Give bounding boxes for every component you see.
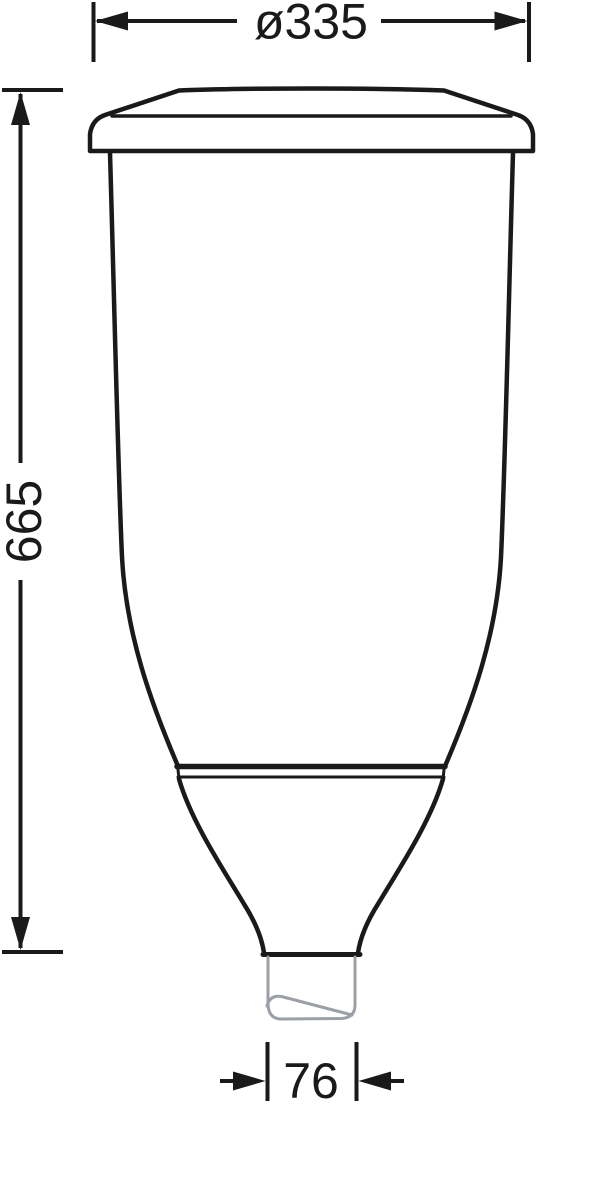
height-dimension-label: 665 [0, 480, 52, 563]
drawing-canvas: ø335 665 [0, 0, 606, 1200]
diameter-dimension-label: ø335 [254, 0, 368, 50]
dimension-height: 665 [0, 90, 63, 952]
spigot-dimension-label: 76 [283, 1053, 339, 1109]
arrowhead-up-icon [11, 92, 30, 125]
body-left-wall [110, 153, 178, 765]
dimension-spigot: 76 [220, 1042, 404, 1109]
pole-break-line [267, 996, 352, 1015]
funnel-left-wall [179, 779, 264, 953]
luminaire-outline [90, 89, 533, 955]
dimension-diameter: ø335 [94, 0, 530, 62]
body-right-wall [446, 153, 514, 765]
technical-drawing: ø335 665 [0, 0, 606, 1200]
cap-outline [90, 89, 533, 152]
funnel-right-wall [358, 779, 443, 953]
arrowhead-right-icon [495, 12, 528, 31]
pole-break [267, 957, 355, 1019]
arrowhead-left-icon [95, 12, 128, 31]
arrowhead-inward-right-icon [233, 1072, 266, 1091]
arrowhead-inward-left-icon [359, 1072, 392, 1091]
pole-outline [268, 957, 355, 1019]
arrowhead-down-icon [11, 917, 30, 950]
